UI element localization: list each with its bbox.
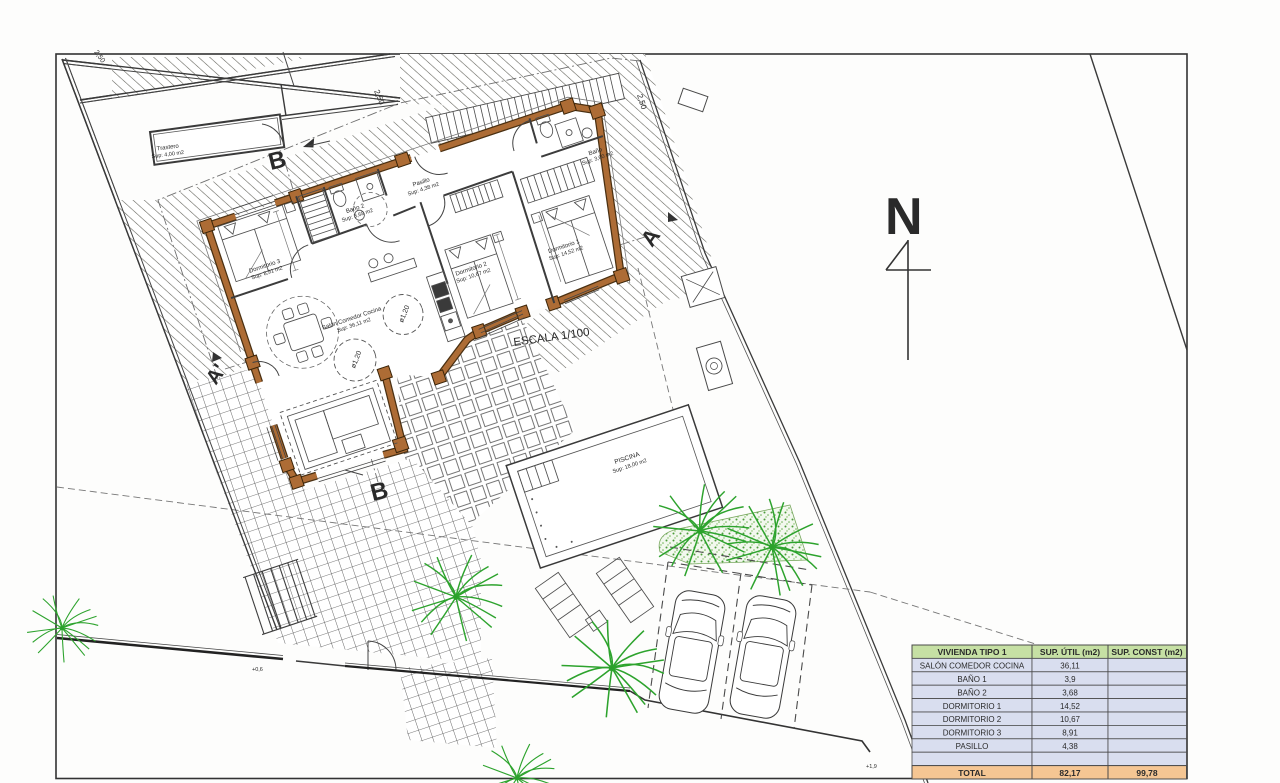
svg-text:SUP. CONST (m2): SUP. CONST (m2) — [1111, 647, 1182, 657]
svg-text:99,78: 99,78 — [1136, 768, 1158, 778]
svg-text:SUP. ÚTIL (m2): SUP. ÚTIL (m2) — [1040, 646, 1100, 657]
svg-text:DORMITORIO 2: DORMITORIO 2 — [943, 715, 1002, 724]
svg-text:BAÑO 2: BAÑO 2 — [957, 688, 987, 697]
svg-text:DORMITORIO 3: DORMITORIO 3 — [943, 729, 1002, 738]
svg-text:10,67: 10,67 — [1060, 715, 1081, 724]
svg-text:+0,6: +0,6 — [252, 667, 263, 673]
svg-text:TOTAL: TOTAL — [958, 768, 986, 778]
svg-text:BAÑO 1: BAÑO 1 — [957, 675, 987, 684]
svg-text:82,17: 82,17 — [1059, 768, 1081, 778]
svg-text:+1,9: +1,9 — [866, 764, 877, 770]
svg-text:36,11: 36,11 — [1060, 662, 1080, 671]
svg-text:SALÓN COMEDOR COCINA: SALÓN COMEDOR COCINA — [920, 662, 1025, 671]
svg-text:14,52: 14,52 — [1060, 702, 1081, 711]
svg-text:VIVIENDA TIPO 1: VIVIENDA TIPO 1 — [937, 647, 1006, 657]
svg-text:N: N — [885, 188, 923, 246]
svg-text:DORMITORIO 1: DORMITORIO 1 — [943, 702, 1002, 711]
svg-text:PASILLO: PASILLO — [956, 742, 989, 751]
svg-text:4,38: 4,38 — [1062, 742, 1078, 751]
svg-text:3,68: 3,68 — [1062, 688, 1078, 697]
svg-text:8,91: 8,91 — [1062, 729, 1078, 738]
svg-text:3,9: 3,9 — [1064, 675, 1076, 684]
